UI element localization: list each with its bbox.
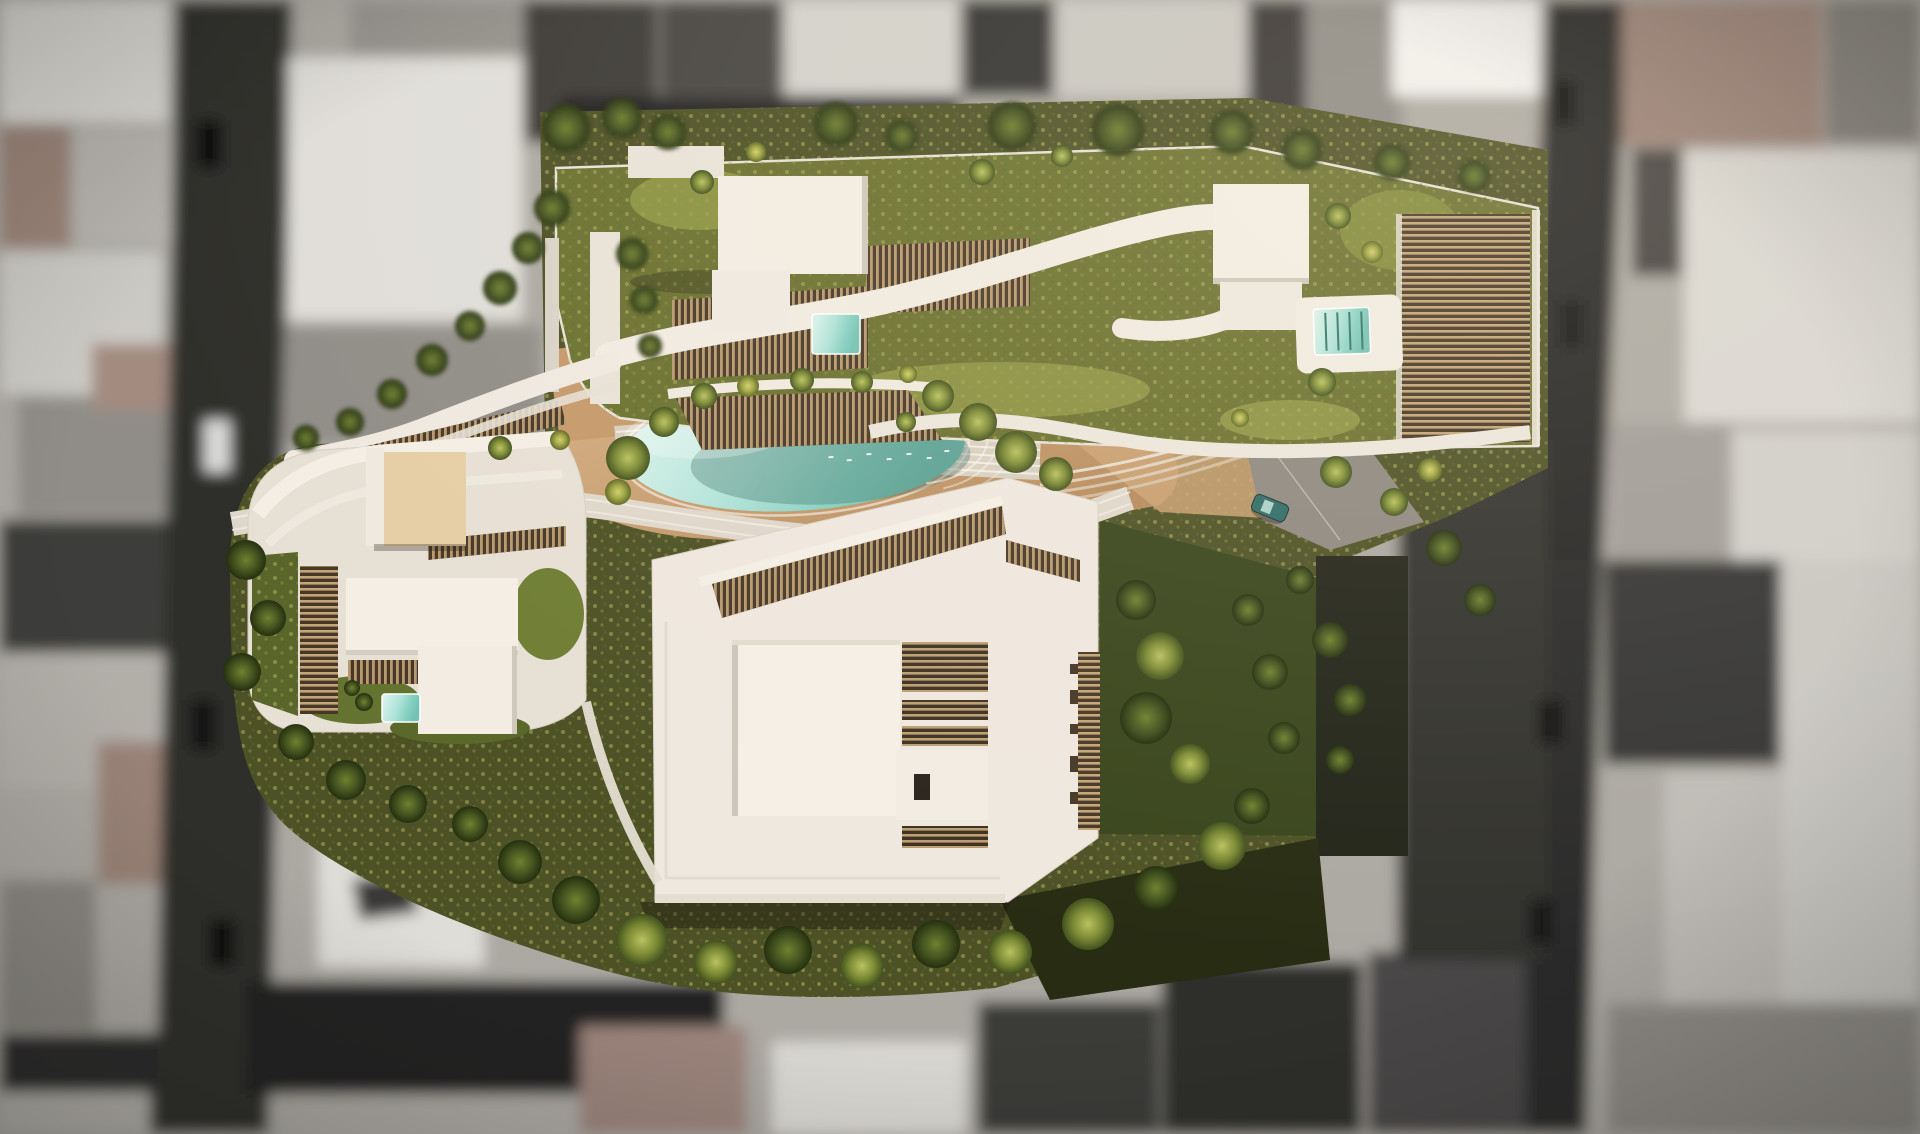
render-canvas: [0, 0, 1920, 1134]
vignette-overlay: [0, 0, 1920, 1134]
aerial-render-image: [0, 0, 1920, 1134]
